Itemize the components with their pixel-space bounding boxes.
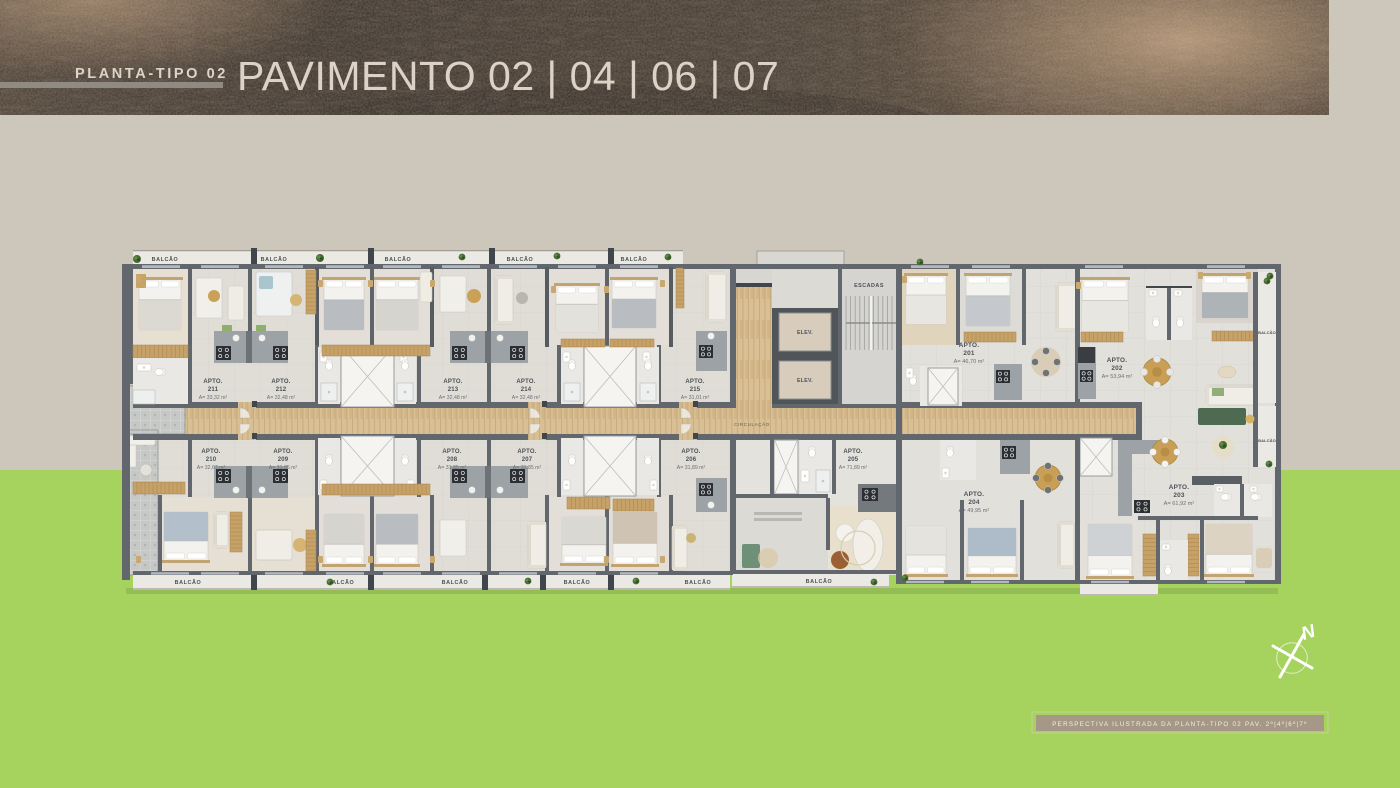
svg-text:A= 71,89 m²: A= 71,89 m² xyxy=(839,465,868,471)
svg-text:205: 205 xyxy=(848,457,859,463)
svg-text:APTO.: APTO. xyxy=(442,449,461,455)
svg-text:BALCÃO: BALCÃO xyxy=(175,579,202,586)
svg-text:BALCÃO: BALCÃO xyxy=(261,256,288,263)
svg-text:APTO.: APTO. xyxy=(517,449,536,455)
svg-text:A= 31,89 m²: A= 31,89 m² xyxy=(677,465,706,471)
svg-text:APTO.: APTO. xyxy=(959,342,979,349)
svg-text:BALCÃO: BALCÃO xyxy=(385,256,412,263)
svg-text:210: 210 xyxy=(206,457,217,463)
svg-text:BALCÃO: BALCÃO xyxy=(564,579,591,586)
svg-text:213: 213 xyxy=(448,387,459,393)
svg-text:201: 201 xyxy=(963,350,975,357)
svg-text:BALCÃO: BALCÃO xyxy=(806,578,833,585)
svg-text:APTO.: APTO. xyxy=(201,449,220,455)
svg-text:207: 207 xyxy=(522,457,533,463)
svg-text:A= 32,48 m²: A= 32,48 m² xyxy=(267,395,296,401)
svg-text:BALCÃO: BALCÃO xyxy=(1258,438,1276,443)
svg-text:PAVIMENTO 02 | 04 | 06 | 07: PAVIMENTO 02 | 04 | 06 | 07 xyxy=(237,53,779,99)
svg-text:212: 212 xyxy=(276,387,287,393)
svg-text:BALCÃO: BALCÃO xyxy=(442,579,469,586)
svg-text:A= 31,85 m²: A= 31,85 m² xyxy=(438,465,467,471)
svg-text:PLANTA-TIPO 02: PLANTA-TIPO 02 xyxy=(75,66,228,82)
svg-text:214: 214 xyxy=(521,387,532,393)
svg-text:202: 202 xyxy=(1111,365,1123,372)
svg-text:A= 32,48 m²: A= 32,48 m² xyxy=(439,395,468,401)
svg-text:BALCÃO: BALCÃO xyxy=(685,579,712,586)
svg-text:A= 61,92 m²: A= 61,92 m² xyxy=(1164,501,1195,507)
svg-text:BALCÃO: BALCÃO xyxy=(621,256,648,263)
svg-text:A= 46,70 m²: A= 46,70 m² xyxy=(954,359,985,365)
svg-text:APTO.: APTO. xyxy=(1107,357,1127,364)
svg-text:204: 204 xyxy=(968,499,980,506)
svg-text:APTO.: APTO. xyxy=(516,379,535,385)
svg-text:208: 208 xyxy=(447,457,458,463)
svg-text:A= 31,85 m²: A= 31,85 m² xyxy=(269,465,298,471)
svg-text:A= 53,94 m²: A= 53,94 m² xyxy=(1102,374,1133,380)
svg-text:APTO.: APTO. xyxy=(203,379,222,385)
svg-text:BALCÃO: BALCÃO xyxy=(1258,330,1276,335)
svg-text:APTO.: APTO. xyxy=(271,379,290,385)
svg-text:ELEV.: ELEV. xyxy=(797,330,813,336)
svg-text:PERSPECTIVA ILUSTRADA DA PLANT: PERSPECTIVA ILUSTRADA DA PLANTA-TIPO 02 … xyxy=(1052,721,1308,728)
svg-text:CIRCULAÇÃO: CIRCULAÇÃO xyxy=(734,422,770,427)
svg-text:ESCADAS: ESCADAS xyxy=(854,283,884,289)
svg-text:206: 206 xyxy=(686,457,697,463)
svg-text:A= 33,32 m²: A= 33,32 m² xyxy=(199,395,228,401)
svg-text:215: 215 xyxy=(690,387,701,393)
svg-text:APTO.: APTO. xyxy=(843,449,862,455)
svg-text:APTO.: APTO. xyxy=(443,379,462,385)
svg-text:211: 211 xyxy=(208,387,219,393)
svg-text:A= 31,85 m²: A= 31,85 m² xyxy=(513,465,542,471)
svg-text:BALCÃO: BALCÃO xyxy=(507,256,534,263)
svg-text:APTO.: APTO. xyxy=(964,491,984,498)
svg-text:203: 203 xyxy=(1173,492,1185,499)
svg-text:APTO.: APTO. xyxy=(1169,484,1189,491)
svg-text:A= 32,48 m²: A= 32,48 m² xyxy=(512,395,541,401)
svg-text:BALCÃO: BALCÃO xyxy=(152,256,179,263)
svg-text:APTO.: APTO. xyxy=(685,379,704,385)
svg-text:A= 31,01 m²: A= 31,01 m² xyxy=(681,395,710,401)
svg-text:APTO.: APTO. xyxy=(273,449,292,455)
svg-text:ELEV.: ELEV. xyxy=(797,378,813,384)
svg-text:A= 32,67 m²: A= 32,67 m² xyxy=(197,465,226,471)
svg-text:209: 209 xyxy=(278,457,289,463)
svg-text:APTO.: APTO. xyxy=(681,449,700,455)
